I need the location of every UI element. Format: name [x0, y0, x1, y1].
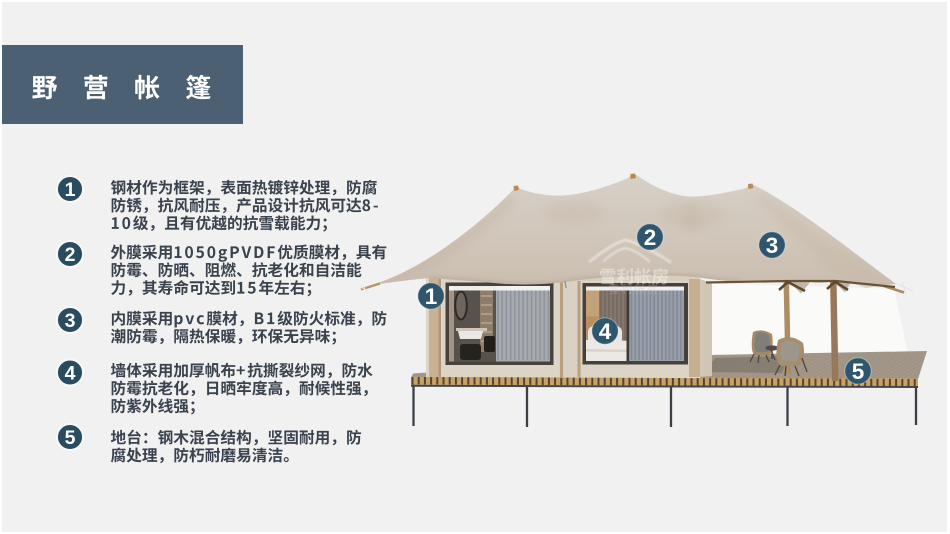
svg-text:1: 1: [425, 284, 438, 309]
svg-text:5: 5: [65, 427, 76, 449]
svg-text:2: 2: [644, 225, 657, 250]
svg-text:4: 4: [65, 363, 76, 385]
svg-text:4: 4: [599, 319, 612, 344]
svg-text:3: 3: [766, 233, 779, 258]
svg-text:5: 5: [852, 359, 865, 384]
svg-text:3: 3: [65, 310, 76, 332]
svg-text:1: 1: [65, 179, 76, 201]
svg-text:2: 2: [65, 244, 76, 266]
